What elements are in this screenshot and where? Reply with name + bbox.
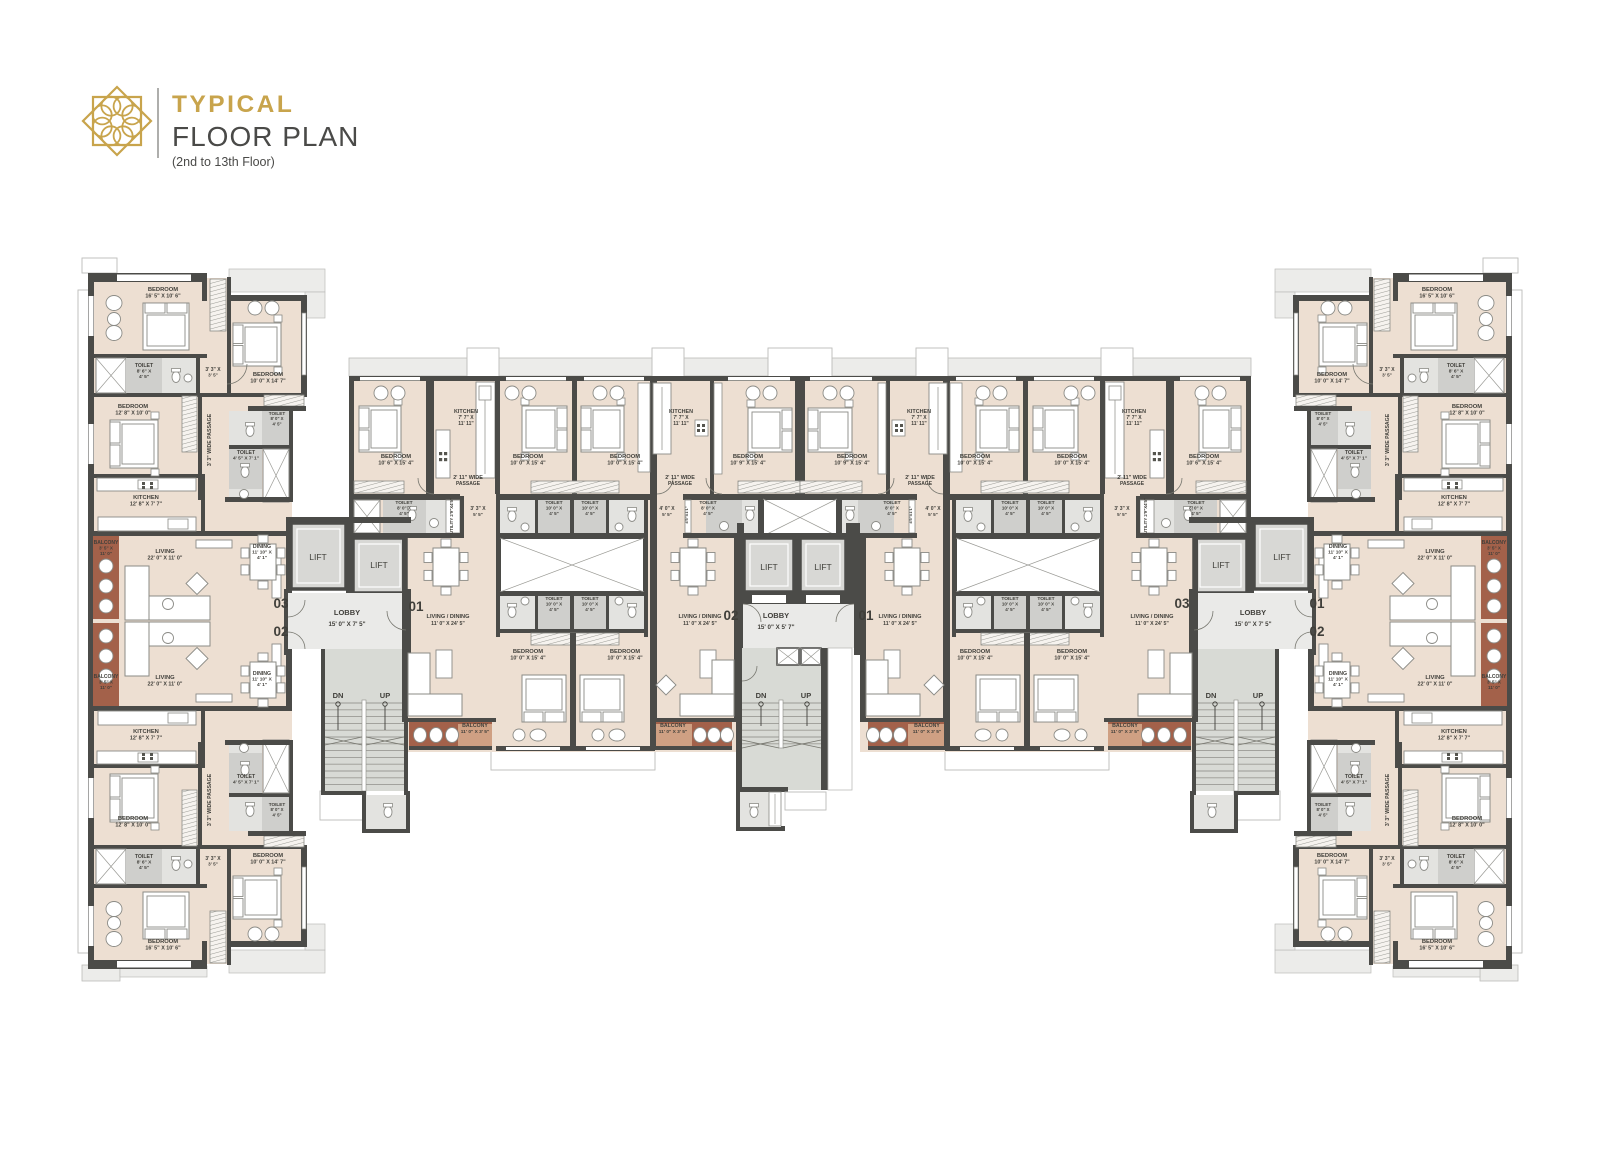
svg-text:01: 01 [858, 608, 874, 623]
svg-text:3' 5" X: 3' 5" X [99, 546, 114, 551]
svg-text:DINING: DINING [253, 671, 271, 677]
svg-text:TYPICAL: TYPICAL [172, 91, 294, 118]
svg-text:BEDROOM: BEDROOM [381, 454, 411, 460]
svg-text:10' 9" X 15' 4": 10' 9" X 15' 4" [834, 461, 870, 467]
svg-text:3' 3" WIDE PASSAGE: 3' 3" WIDE PASSAGE [1385, 413, 1391, 466]
svg-text:4' 5": 4' 5" [272, 812, 281, 817]
svg-text:3' 5": 3' 5" [208, 373, 218, 378]
svg-text:11' 0" X 3' 5": 11' 0" X 3' 5" [1111, 729, 1139, 735]
svg-text:BEDROOM: BEDROOM [118, 816, 148, 822]
svg-text:11' 0" X 3' 5": 11' 0" X 3' 5" [461, 729, 489, 735]
svg-text:BEDROOM: BEDROOM [1317, 853, 1347, 859]
svg-text:4' 5": 4' 5" [549, 607, 558, 612]
svg-text:5' 5": 5' 5" [1117, 512, 1127, 517]
svg-text:LIVING: LIVING [1425, 675, 1445, 681]
svg-text:11' 0": 11' 0" [1488, 685, 1500, 690]
svg-text:4' 5" X 7' 1": 4' 5" X 7' 1" [233, 780, 259, 786]
svg-text:16' 5" X 10' 6": 16' 5" X 10' 6" [145, 946, 181, 952]
svg-text:10' 0" X: 10' 0" X [582, 601, 598, 606]
svg-text:3' 5" X: 3' 5" X [1487, 546, 1502, 551]
svg-text:10' 0" X 14' 7": 10' 0" X 14' 7" [250, 379, 286, 385]
svg-text:11' 10" X: 11' 10" X [1328, 550, 1348, 556]
svg-text:BEDROOM: BEDROOM [148, 287, 178, 293]
svg-text:10' 6" X 15' 4": 10' 6" X 15' 4" [378, 461, 414, 467]
svg-text:BEDROOM: BEDROOM [610, 454, 640, 460]
svg-text:(2nd to 13th Floor): (2nd to 13th Floor) [172, 155, 275, 169]
svg-text:22' 0" X 11' 0": 22' 0" X 11' 0" [148, 682, 183, 688]
svg-text:TOILET: TOILET [135, 363, 154, 369]
svg-text:LIVING / DINING: LIVING / DINING [1131, 614, 1174, 620]
svg-text:10' 0" X 15' 4": 10' 0" X 15' 4" [1054, 461, 1090, 467]
svg-text:4' 5" X 7' 1": 4' 5" X 7' 1" [233, 456, 259, 462]
svg-text:12' 8" X 7' 7": 12' 8" X 7' 7" [130, 502, 163, 508]
svg-text:BEDROOM: BEDROOM [1057, 649, 1087, 655]
svg-text:11' 0": 11' 0" [100, 685, 112, 690]
svg-text:10' 0" X 15' 4": 10' 0" X 15' 4" [607, 461, 643, 467]
svg-text:11' 10" X: 11' 10" X [1328, 677, 1348, 683]
svg-text:4' 5": 4' 5" [1451, 865, 1461, 871]
svg-text:4' 5" X 7' 1": 4' 5" X 7' 1" [1341, 456, 1367, 462]
svg-text:8' 0" X: 8' 0" X [885, 505, 899, 510]
svg-text:10' 0" X 14' 7": 10' 0" X 14' 7" [250, 860, 286, 866]
svg-text:3' 3" WIDE PASSAGE: 3' 3" WIDE PASSAGE [1385, 773, 1391, 826]
svg-text:UP: UP [801, 691, 811, 700]
svg-text:PASSAGE: PASSAGE [668, 481, 693, 487]
svg-text:11' 11": 11' 11" [1126, 421, 1142, 427]
svg-text:TOILET: TOILET [135, 854, 154, 860]
svg-text:BALCONY: BALCONY [1112, 723, 1138, 729]
svg-text:LOBBY: LOBBY [334, 608, 360, 617]
svg-text:16' 5" X 10' 6": 16' 5" X 10' 6" [1419, 946, 1455, 952]
svg-text:BEDROOM: BEDROOM [118, 404, 148, 410]
svg-text:12' 8" X 7' 7": 12' 8" X 7' 7" [130, 736, 163, 742]
svg-text:DINING: DINING [1329, 671, 1347, 677]
svg-text:DINING: DINING [253, 544, 271, 550]
svg-text:KITCHEN: KITCHEN [133, 729, 159, 735]
svg-text:4' 5": 4' 5" [1318, 421, 1327, 426]
svg-text:4' 5": 4' 5" [399, 511, 408, 516]
svg-text:5' 5": 5' 5" [928, 512, 938, 517]
svg-text:10' 0" X: 10' 0" X [1002, 601, 1018, 606]
svg-text:KITCHEN: KITCHEN [133, 495, 159, 501]
svg-text:LIFT: LIFT [370, 560, 387, 570]
svg-text:22' 0" X 11' 0": 22' 0" X 11' 0" [1418, 556, 1453, 562]
svg-text:10' 0" X 14' 7": 10' 0" X 14' 7" [1314, 860, 1350, 866]
svg-text:22' 0" X 11' 0": 22' 0" X 11' 0" [1418, 682, 1453, 688]
svg-text:PASSAGE: PASSAGE [1120, 481, 1145, 487]
svg-text:BEDROOM: BEDROOM [1452, 816, 1482, 822]
svg-text:4' 5": 4' 5" [139, 865, 149, 871]
svg-text:2' 11" WIDE: 2' 11" WIDE [665, 475, 695, 481]
svg-text:11' 11": 11' 11" [673, 421, 689, 427]
svg-text:4' 5": 4' 5" [1041, 511, 1050, 516]
svg-text:3' 3" WIDE PASSAGE: 3' 3" WIDE PASSAGE [207, 413, 213, 466]
svg-text:11' 0" X 24' 5": 11' 0" X 24' 5" [1135, 621, 1169, 627]
svg-text:4' 5": 4' 5" [272, 421, 281, 426]
svg-text:12' 8" X 10' 0": 12' 8" X 10' 0" [1449, 411, 1485, 417]
svg-text:LIFT: LIFT [814, 562, 831, 572]
svg-text:8' 6" X: 8' 6" X [137, 860, 152, 866]
svg-text:3' 5": 3' 5" [1382, 373, 1392, 378]
svg-text:12' 8" X 10' 0": 12' 8" X 10' 0" [115, 411, 151, 417]
svg-text:11' 10" X: 11' 10" X [252, 677, 272, 683]
svg-text:02: 02 [1309, 624, 1324, 639]
svg-text:11' 0" X 3' 5": 11' 0" X 3' 5" [913, 729, 941, 735]
svg-text:BEDROOM: BEDROOM [253, 853, 283, 859]
svg-text:TOILET: TOILET [1345, 450, 1364, 456]
svg-text:12' 8" X 7' 7": 12' 8" X 7' 7" [1438, 736, 1471, 742]
svg-text:10' 0" X: 10' 0" X [1038, 505, 1054, 510]
svg-text:KITCHEN: KITCHEN [1441, 729, 1467, 735]
svg-text:10' 0" X 15' 4": 10' 0" X 15' 4" [510, 656, 546, 662]
svg-text:10' 0" X 15' 4": 10' 0" X 15' 4" [957, 461, 993, 467]
svg-text:11' 0" X 24' 5": 11' 0" X 24' 5" [431, 621, 465, 627]
svg-text:10' 6" X 15' 4": 10' 6" X 15' 4" [1186, 461, 1222, 467]
svg-text:BEDROOM: BEDROOM [1057, 454, 1087, 460]
svg-text:TOILET: TOILET [1345, 774, 1364, 780]
svg-text:LIFT: LIFT [309, 552, 326, 562]
svg-text:LIFT: LIFT [760, 562, 777, 572]
svg-text:LIVING / DINING: LIVING / DINING [879, 614, 922, 620]
svg-text:8' 6" X: 8' 6" X [137, 369, 152, 375]
svg-text:UTILITY 2'9"X4'5": UTILITY 2'9"X4'5" [449, 498, 454, 534]
svg-text:15' 0" X 7' 5": 15' 0" X 7' 5" [1234, 621, 1271, 628]
svg-text:16' 5" X 10' 6": 16' 5" X 10' 6" [145, 294, 181, 300]
svg-text:TOILET: TOILET [237, 774, 256, 780]
svg-text:8' 0" X: 8' 0" X [397, 505, 411, 510]
svg-text:15' 0" X 7' 5": 15' 0" X 7' 5" [328, 621, 365, 628]
svg-text:10' 0" X 14' 7": 10' 0" X 14' 7" [1314, 379, 1350, 385]
svg-text:3' 5" X: 3' 5" X [1487, 680, 1502, 685]
svg-text:10' 0" X 15' 4": 10' 0" X 15' 4" [1054, 656, 1090, 662]
svg-text:4' 1": 4' 1" [1333, 682, 1343, 688]
svg-text:4'5"X1'1": 4'5"X1'1" [908, 506, 913, 523]
svg-text:FLOOR PLAN: FLOOR PLAN [172, 121, 359, 152]
svg-text:4' 1": 4' 1" [1333, 555, 1343, 561]
svg-text:02: 02 [723, 608, 738, 623]
svg-text:PASSAGE: PASSAGE [456, 481, 481, 487]
svg-text:12' 8" X 7' 7": 12' 8" X 7' 7" [1438, 502, 1471, 508]
svg-text:BEDROOM: BEDROOM [960, 454, 990, 460]
svg-text:TOILET: TOILET [1447, 363, 1466, 369]
svg-text:BEDROOM: BEDROOM [610, 649, 640, 655]
svg-text:3' 3" WIDE PASSAGE: 3' 3" WIDE PASSAGE [207, 773, 213, 826]
svg-text:2' 11" WIDE: 2' 11" WIDE [905, 475, 935, 481]
svg-text:BEDROOM: BEDROOM [1422, 939, 1452, 945]
svg-text:TOILET: TOILET [237, 450, 256, 456]
svg-text:11' 10" X: 11' 10" X [252, 550, 272, 556]
svg-text:4' 5": 4' 5" [1451, 374, 1461, 380]
svg-text:4' 5": 4' 5" [887, 511, 896, 516]
svg-text:15' 0" X 5' 7": 15' 0" X 5' 7" [757, 624, 794, 631]
svg-text:BALCONY: BALCONY [660, 723, 686, 729]
svg-text:BEDROOM: BEDROOM [148, 939, 178, 945]
svg-text:03: 03 [273, 596, 289, 611]
svg-text:10' 0" X: 10' 0" X [546, 601, 562, 606]
svg-text:8' 0" X: 8' 0" X [1189, 505, 1203, 510]
svg-text:10' 0" X: 10' 0" X [1002, 505, 1018, 510]
svg-text:BEDROOM: BEDROOM [1189, 454, 1219, 460]
svg-text:LIVING / DINING: LIVING / DINING [679, 614, 722, 620]
svg-text:4'5"X1'1": 4'5"X1'1" [684, 506, 689, 523]
svg-text:11' 0" X 24' 5": 11' 0" X 24' 5" [883, 621, 917, 627]
svg-text:4' 5": 4' 5" [585, 511, 594, 516]
svg-text:PASSAGE: PASSAGE [908, 481, 933, 487]
svg-text:DN: DN [1206, 691, 1217, 700]
svg-text:22' 0" X 11' 0": 22' 0" X 11' 0" [148, 556, 183, 562]
svg-text:4' 1": 4' 1" [257, 555, 267, 561]
svg-text:11' 11": 11' 11" [911, 421, 927, 427]
svg-text:10' 0" X: 10' 0" X [582, 505, 598, 510]
svg-text:12' 8" X 10' 0": 12' 8" X 10' 0" [115, 823, 151, 829]
svg-text:4' 5": 4' 5" [1191, 511, 1200, 516]
svg-text:4' 5" X 7' 1": 4' 5" X 7' 1" [1341, 780, 1367, 786]
svg-text:11' 0" X 3' 5": 11' 0" X 3' 5" [659, 729, 687, 735]
svg-text:5' 5": 5' 5" [662, 512, 672, 517]
svg-text:11' 11": 11' 11" [458, 421, 474, 427]
svg-text:DINING: DINING [1329, 544, 1347, 550]
svg-text:TOILET: TOILET [1447, 854, 1466, 860]
svg-text:BEDROOM: BEDROOM [513, 649, 543, 655]
svg-text:03: 03 [1174, 596, 1190, 611]
svg-text:11' 0" X 24' 5": 11' 0" X 24' 5" [683, 621, 717, 627]
svg-text:16' 5" X 10' 6": 16' 5" X 10' 6" [1419, 294, 1455, 300]
svg-text:LIFT: LIFT [1212, 560, 1229, 570]
svg-text:DN: DN [333, 691, 344, 700]
svg-text:8' 6" X: 8' 6" X [1449, 860, 1464, 866]
svg-text:DN: DN [756, 691, 767, 700]
svg-text:BALCONY: BALCONY [462, 723, 488, 729]
svg-text:BEDROOM: BEDROOM [837, 454, 867, 460]
svg-text:BEDROOM: BEDROOM [960, 649, 990, 655]
svg-text:11' 0": 11' 0" [100, 551, 112, 556]
svg-text:UP: UP [1253, 691, 1263, 700]
svg-text:LIVING: LIVING [1425, 549, 1445, 555]
svg-text:12' 8" X 10' 0": 12' 8" X 10' 0" [1449, 823, 1485, 829]
svg-text:LIVING / DINING: LIVING / DINING [427, 614, 470, 620]
svg-text:8' 6" X: 8' 6" X [1449, 369, 1464, 375]
svg-text:BEDROOM: BEDROOM [1452, 404, 1482, 410]
svg-text:LOBBY: LOBBY [1240, 608, 1266, 617]
svg-text:KITCHEN: KITCHEN [1441, 495, 1467, 501]
svg-text:01: 01 [1309, 596, 1325, 611]
svg-text:4' 5": 4' 5" [1005, 511, 1014, 516]
svg-text:BEDROOM: BEDROOM [733, 454, 763, 460]
svg-text:10' 9" X 15' 4": 10' 9" X 15' 4" [730, 461, 766, 467]
svg-text:10' 0" X 15' 4": 10' 0" X 15' 4" [607, 656, 643, 662]
svg-text:BEDROOM: BEDROOM [253, 372, 283, 378]
svg-text:BEDROOM: BEDROOM [513, 454, 543, 460]
svg-text:UP: UP [380, 691, 390, 700]
svg-text:10' 0" X: 10' 0" X [546, 505, 562, 510]
svg-text:3' 5": 3' 5" [208, 862, 218, 867]
svg-text:10' 0" X: 10' 0" X [1038, 601, 1054, 606]
svg-text:10' 0" X 15' 4": 10' 0" X 15' 4" [510, 461, 546, 467]
svg-text:4' 5": 4' 5" [1041, 607, 1050, 612]
svg-text:BEDROOM: BEDROOM [1422, 287, 1452, 293]
svg-text:8' 0" X: 8' 0" X [701, 505, 715, 510]
svg-text:UTILITY 2'9"X4'5": UTILITY 2'9"X4'5" [1143, 498, 1148, 534]
svg-text:5' 5": 5' 5" [473, 512, 483, 517]
svg-text:2' 11" WIDE: 2' 11" WIDE [1117, 475, 1147, 481]
svg-text:2' 11" WIDE: 2' 11" WIDE [453, 475, 483, 481]
svg-text:4' 5": 4' 5" [703, 511, 712, 516]
svg-text:4' 5": 4' 5" [139, 374, 149, 380]
svg-text:4' 1": 4' 1" [257, 682, 267, 688]
svg-text:02: 02 [273, 624, 288, 639]
svg-text:BEDROOM: BEDROOM [1317, 372, 1347, 378]
svg-text:LIVING: LIVING [155, 549, 175, 555]
svg-text:LOBBY: LOBBY [763, 611, 789, 620]
svg-text:4' 5": 4' 5" [549, 511, 558, 516]
svg-text:4' 5": 4' 5" [1005, 607, 1014, 612]
svg-text:10' 0" X 15' 4": 10' 0" X 15' 4" [957, 656, 993, 662]
svg-text:LIVING: LIVING [155, 675, 175, 681]
svg-text:11' 0": 11' 0" [1488, 551, 1500, 556]
svg-text:BALCONY: BALCONY [914, 723, 940, 729]
svg-text:01: 01 [408, 599, 424, 614]
svg-text:4' 5": 4' 5" [1318, 812, 1327, 817]
svg-text:4' 5": 4' 5" [585, 607, 594, 612]
svg-text:3' 5" X: 3' 5" X [99, 680, 114, 685]
svg-text:3' 5": 3' 5" [1382, 862, 1392, 867]
svg-text:LIFT: LIFT [1273, 552, 1290, 562]
